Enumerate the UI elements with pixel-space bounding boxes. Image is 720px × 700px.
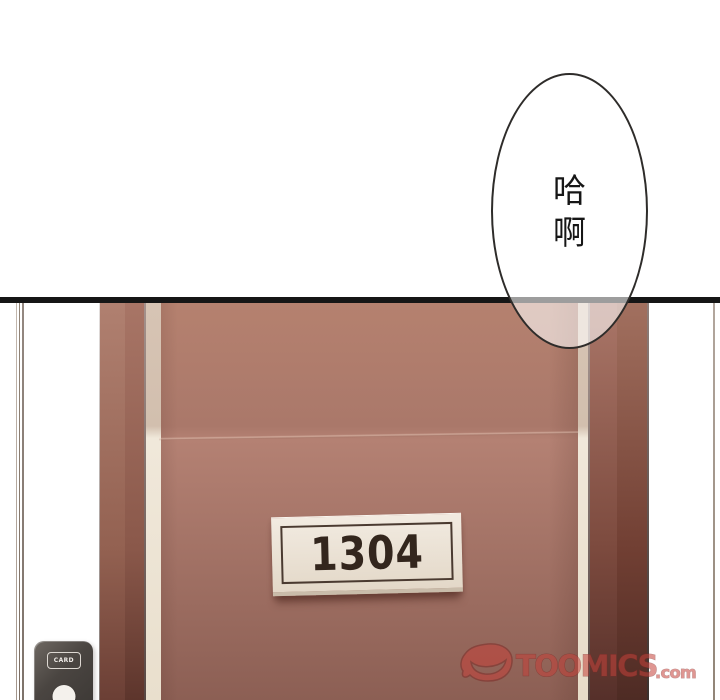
card-reader-label: CARD (53, 658, 73, 664)
speech-bubble-text-line: 哈 (553, 174, 586, 207)
speech-bubble-text-line: 啊 (553, 216, 586, 249)
toomics-smile-logo-icon (461, 644, 512, 681)
door-frame-left-outer (100, 303, 125, 700)
right-wall-corner-line (713, 303, 715, 700)
comic-panel: 1304 CARD TOOMICS .com 哈 啊 (0, 0, 720, 700)
room-number-plate: 1304 (271, 513, 463, 597)
speech-bubble: 哈 啊 (491, 73, 648, 349)
card-slot-badge: CARD (47, 652, 81, 669)
left-wall-corner-line (16, 303, 17, 700)
card-reader: CARD (34, 641, 93, 700)
room-number-plate-border: 1304 (280, 522, 453, 584)
toomics-brand-text: TOOMICS (516, 649, 657, 683)
toomics-domain-text: .com (655, 663, 696, 682)
left-wall-corner-line (19, 303, 20, 700)
toomics-watermark: TOOMICS .com (452, 641, 702, 689)
door-jamb-left (146, 303, 161, 700)
card-reader-button-icon (52, 685, 75, 700)
left-wall-corner-line (22, 303, 24, 700)
room-number: 1304 (310, 529, 425, 578)
door-panel-seam (159, 431, 580, 441)
door-frame-left-inner (125, 303, 144, 700)
